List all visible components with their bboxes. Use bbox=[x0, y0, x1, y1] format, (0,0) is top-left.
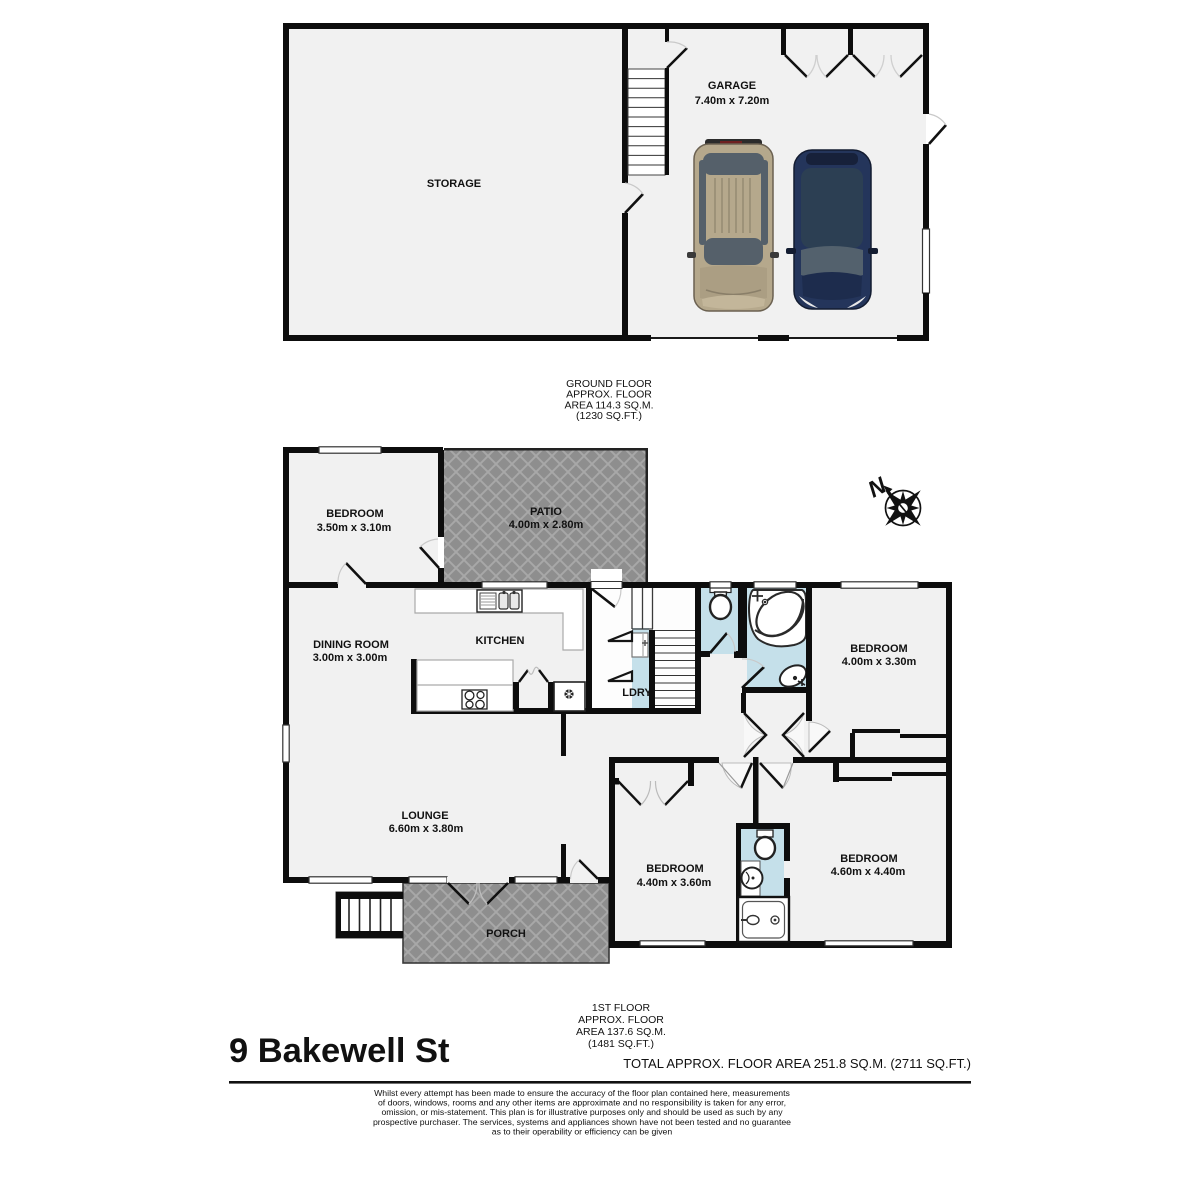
svg-text:LOUNGE: LOUNGE bbox=[401, 810, 448, 822]
svg-text:LDRY: LDRY bbox=[622, 687, 652, 699]
svg-text:STORAGE: STORAGE bbox=[427, 178, 481, 190]
svg-text:3.50m x 3.10m: 3.50m x 3.10m bbox=[317, 522, 392, 534]
svg-text:(1230 SQ.FT.): (1230 SQ.FT.) bbox=[576, 410, 642, 422]
svg-text:of doors, windows, rooms and a: of doors, windows, rooms and any other i… bbox=[378, 1098, 786, 1108]
svg-text:6.60m x 3.80m: 6.60m x 3.80m bbox=[389, 823, 464, 835]
svg-text:DINING ROOM: DINING ROOM bbox=[313, 639, 389, 651]
svg-text:1ST FLOOR: 1ST FLOOR bbox=[592, 1002, 651, 1014]
svg-text:PORCH: PORCH bbox=[486, 928, 526, 940]
svg-text:(1481 SQ.FT.): (1481 SQ.FT.) bbox=[588, 1038, 654, 1050]
svg-text:APPROX. FLOOR: APPROX. FLOOR bbox=[578, 1014, 664, 1026]
svg-text:4.40m x 3.60m: 4.40m x 3.60m bbox=[637, 877, 712, 889]
svg-text:4.60m x 4.40m: 4.60m x 4.40m bbox=[831, 866, 906, 878]
svg-text:7.40m x 7.20m: 7.40m x 7.20m bbox=[695, 95, 770, 107]
svg-text:as to their operability or eff: as to their operability or efficiency ca… bbox=[492, 1126, 673, 1136]
svg-text:BEDROOM: BEDROOM bbox=[646, 863, 703, 875]
svg-text:Whilst every attempt has been: Whilst every attempt has been made to en… bbox=[374, 1088, 790, 1098]
svg-text:PATIO: PATIO bbox=[530, 506, 562, 518]
svg-text:BEDROOM: BEDROOM bbox=[326, 508, 383, 520]
svg-text:AREA 137.6 SQ.M.: AREA 137.6 SQ.M. bbox=[576, 1026, 666, 1038]
svg-text:9 Bakewell St: 9 Bakewell St bbox=[229, 1032, 450, 1070]
svg-text:TOTAL APPROX. FLOOR AREA 251.8: TOTAL APPROX. FLOOR AREA 251.8 SQ.M. (27… bbox=[623, 1056, 971, 1071]
svg-text:prospective purchaser. The ser: prospective purchaser. The services, sys… bbox=[373, 1117, 791, 1127]
svg-text:GARAGE: GARAGE bbox=[708, 80, 756, 92]
svg-text:BEDROOM: BEDROOM bbox=[840, 853, 897, 865]
svg-text:4.00m x 2.80m: 4.00m x 2.80m bbox=[509, 519, 584, 531]
svg-text:4.00m x 3.30m: 4.00m x 3.30m bbox=[842, 656, 917, 668]
svg-text:omission, or mis-statement. Th: omission, or mis-statement. This plan is… bbox=[381, 1107, 783, 1117]
svg-text:3.00m x 3.00m: 3.00m x 3.00m bbox=[313, 652, 388, 664]
svg-text:BEDROOM: BEDROOM bbox=[850, 643, 907, 655]
svg-text:KITCHEN: KITCHEN bbox=[476, 635, 525, 647]
